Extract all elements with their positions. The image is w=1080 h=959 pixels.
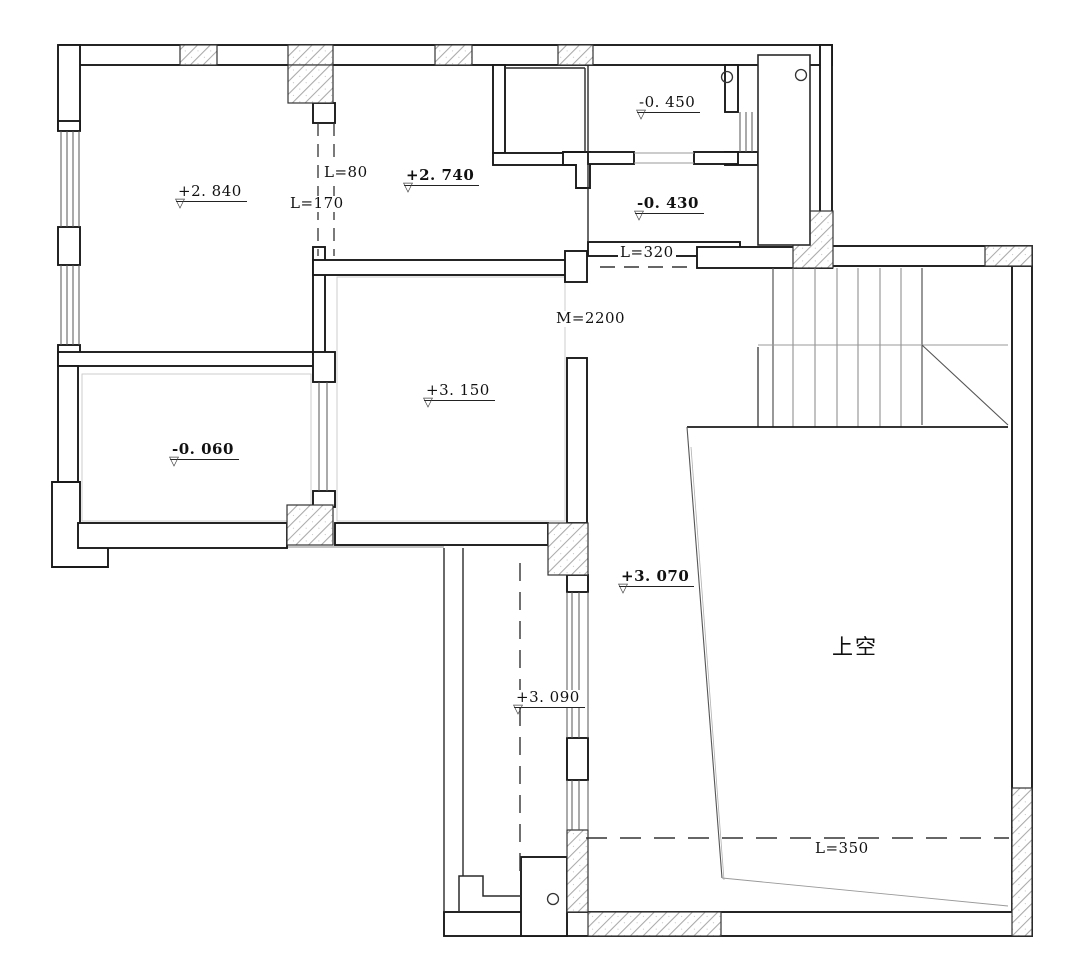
dimension-label-L320: L=320 bbox=[618, 245, 676, 261]
wall-hatch-blocks bbox=[180, 45, 1032, 936]
elevation-triangle-icon: ▽ bbox=[513, 703, 523, 717]
window-glazing bbox=[61, 112, 758, 830]
elevation-value: +2. 740 bbox=[406, 166, 474, 184]
dimension-label-L170: L=170 bbox=[288, 196, 346, 212]
stair-shaft bbox=[758, 55, 810, 245]
elevation-triangle-icon: ▽ bbox=[423, 396, 433, 410]
area-label-void: 上空 bbox=[832, 636, 878, 658]
elevation-value: +3. 070 bbox=[621, 567, 689, 585]
elevation-value: +3. 150 bbox=[426, 381, 490, 399]
elevation-triangle-icon: ▽ bbox=[618, 582, 628, 596]
dimension-label-M2200: M=2200 bbox=[554, 311, 627, 327]
stair-winder-diagonal bbox=[922, 345, 1008, 425]
elevation-triangle-icon: ▽ bbox=[175, 197, 185, 211]
walls bbox=[52, 45, 1032, 936]
elevation-label-3090: +3. 090▽ bbox=[514, 690, 585, 708]
dimension-label-L350: L=350 bbox=[813, 841, 871, 857]
elevation-triangle-icon: ▽ bbox=[169, 455, 179, 469]
elevation-label-0450: -0. 450▽ bbox=[637, 95, 700, 113]
floor-plan-drawing bbox=[0, 0, 1080, 959]
elevation-label-3150: +3. 150▽ bbox=[424, 383, 495, 401]
void-boundary bbox=[687, 427, 1008, 906]
elevation-label-2840: +2. 840▽ bbox=[176, 184, 247, 202]
elevation-triangle-icon: ▽ bbox=[403, 181, 413, 195]
elevation-triangle-icon: ▽ bbox=[634, 209, 644, 223]
dashed-opening-lines bbox=[318, 123, 1009, 878]
elevation-value: -0. 060 bbox=[172, 440, 234, 458]
elevation-value: -0. 430 bbox=[637, 194, 699, 212]
elevation-triangle-icon: ▽ bbox=[636, 108, 646, 122]
dimension-label-L80: L=80 bbox=[322, 165, 370, 181]
elevation-label-0430: -0. 430▽ bbox=[635, 196, 704, 214]
elevation-value: -0. 450 bbox=[639, 93, 695, 111]
elevation-value: +3. 090 bbox=[516, 688, 580, 706]
elevation-label-2740: +2. 740▽ bbox=[404, 168, 479, 186]
floor-plan-page: +2. 840▽ +2. 740▽ -0. 450▽ -0. 430▽ +3. … bbox=[0, 0, 1080, 959]
elevation-value: +2. 840 bbox=[178, 182, 242, 200]
elevation-label-3070: +3. 070▽ bbox=[619, 569, 694, 587]
elevation-label-0060: -0. 060▽ bbox=[170, 442, 239, 460]
